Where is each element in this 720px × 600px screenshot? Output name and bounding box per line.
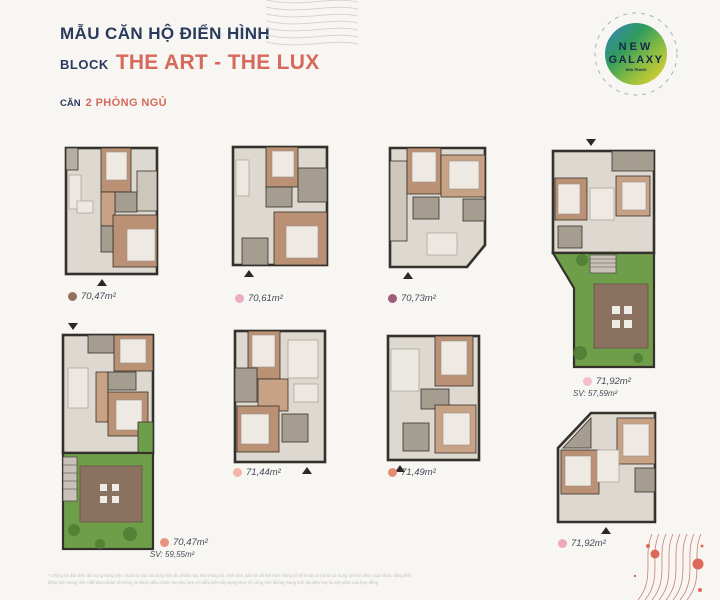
area-dot [558,539,567,548]
plan-2-label: 70,61m² [235,293,283,304]
floorplan-5 [60,332,156,553]
plan-1-label: 70,47m² [68,291,116,302]
new-galaxy-logo: NEW GALAXY NHA TRANG [590,8,682,100]
plan-6-label: 71,44m² [233,467,281,478]
floorplan-2 [230,144,330,268]
brochure-page: MẪU CĂN HỘ ĐIỂN HÌNH BLOCK THE ART - THE… [0,0,720,600]
area-label: 71,92m² [571,538,606,549]
unit-prefix: CĂN [60,98,81,109]
wave-decoration-bottom-right [630,534,720,600]
entrance-arrow-icon [302,467,312,474]
unit-line: CĂN 2 PHÒNG NGỦ [60,97,320,109]
plan-3-label: 70,73m² [388,293,436,304]
plan-8-label: 71,92m² [558,538,606,549]
plan-5-label: 70,47m² SV: 59,55m² [160,537,208,559]
entrance-arrow-icon [586,139,596,146]
area-dot [388,294,397,303]
entrance-arrow-icon [97,279,107,286]
sv-label: SV: 59,55m² [150,550,208,559]
floorplan-6-drawing [232,328,328,465]
plan-4-label: 71,92m² SV: 57,59m² [583,376,631,398]
floorplan-3-drawing [387,145,488,270]
floorplan-7-drawing [385,333,482,463]
logo-subtitle: NHA TRANG [626,68,647,72]
floorplan-6 [232,328,328,465]
floorplan-1 [63,145,160,277]
footer-line-2: đồng thời mang tính chất tham khảo và th… [48,579,680,586]
floorplan-1-drawing [63,145,160,277]
floorplan-4 [550,148,657,370]
area-label: 71,44m² [246,467,281,478]
area-label: 70,47m² [81,291,116,302]
floorplan-5-drawing [60,332,156,553]
area-label: 70,47m² [173,537,208,548]
logo-text-new: NEW [619,41,654,53]
area-dot [235,294,244,303]
area-label: 70,73m² [401,293,436,304]
wave-decoration-top [266,0,358,58]
floorplan-8-drawing [555,410,658,525]
floorplan-3 [387,145,488,270]
floorplan-4-drawing [550,148,657,370]
area-dot [233,468,242,477]
sv-label: SV: 57,59m² [573,389,631,398]
entrance-arrow-icon [403,272,413,279]
unit-type: 2 PHÒNG NGỦ [86,97,167,109]
footer-line-1: * Chúng tôi đặc biệt cẩn trọng trong việ… [48,572,680,579]
logo-text-galaxy: GALAXY [609,54,664,66]
entrance-arrow-icon [68,323,78,330]
entrance-arrow-icon [244,270,254,277]
floorplan-2-drawing [230,144,330,268]
plan-7-label: 71,49m² [388,467,436,478]
area-label: 71,92m² [596,376,631,387]
area-label: 70,61m² [248,293,283,304]
block-prefix: BLOCK [60,57,109,72]
area-dot [160,538,169,547]
area-dot [583,377,592,386]
footer-disclaimer: * Chúng tôi đặc biệt cẩn trọng trong việ… [48,572,680,586]
area-label: 71,49m² [401,467,436,478]
area-dot [388,468,397,477]
entrance-arrow-icon [601,527,611,534]
area-dot [68,292,77,301]
floorplan-7 [385,333,482,463]
floorplan-8 [555,410,658,525]
